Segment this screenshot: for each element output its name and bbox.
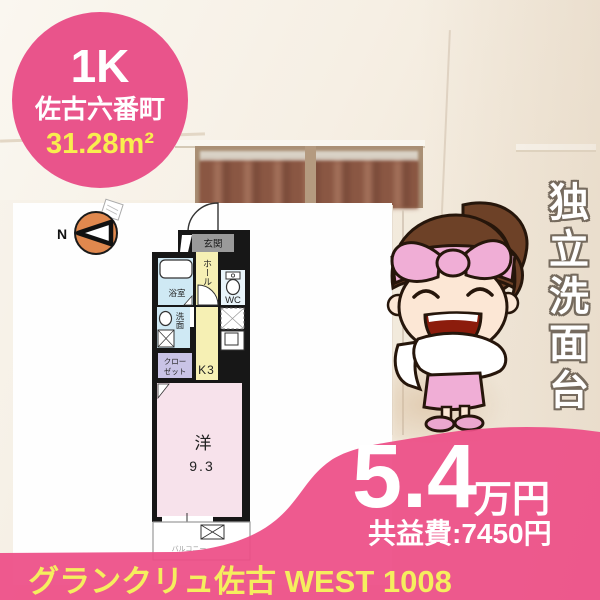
hall-label: ホール: [202, 259, 212, 286]
sliding-door-mark: [190, 307, 194, 327]
washroom-label: 洗面: [175, 311, 185, 330]
badge-location: 佐古六番町: [35, 95, 165, 125]
listing-card: N 玄関 浴室 ホール WC 洗面: [0, 0, 600, 600]
compass-north-label: N: [57, 226, 67, 242]
wc-label: WC: [225, 295, 241, 306]
rent-amount: 5.4: [352, 432, 477, 522]
property-title: グランクリュ佐古 WEST 1008: [0, 556, 480, 600]
mascot-towel: [414, 333, 506, 379]
toilet-tank-icon: [226, 272, 240, 279]
mascot-bow-knot: [437, 250, 469, 276]
bath-label: 浴室: [168, 288, 186, 298]
genkan-label: 玄関: [203, 238, 222, 250]
toilet-bowl-icon: [227, 280, 240, 295]
entrance-door-arc: [188, 203, 218, 232]
compass: N: [55, 198, 135, 262]
mascot-bow-left: [392, 243, 440, 282]
closet-label-1: クロー: [164, 357, 187, 366]
bathtub-icon: [160, 260, 192, 278]
sink-icon: [160, 312, 172, 326]
mascot-bow-right: [466, 241, 511, 279]
common-fee: 共益費:7450円: [368, 512, 552, 552]
closet-label-2: ゼット: [164, 366, 187, 376]
kitchen-label: K3: [198, 363, 215, 377]
badge-layout-type: 1K: [71, 40, 130, 93]
badge-area: 31.28m²: [46, 128, 154, 161]
window-mullion: [305, 146, 316, 208]
property-badge: 1K 佐古六番町 31.28m²: [12, 12, 188, 188]
kitchen-sink-icon: [225, 333, 238, 345]
